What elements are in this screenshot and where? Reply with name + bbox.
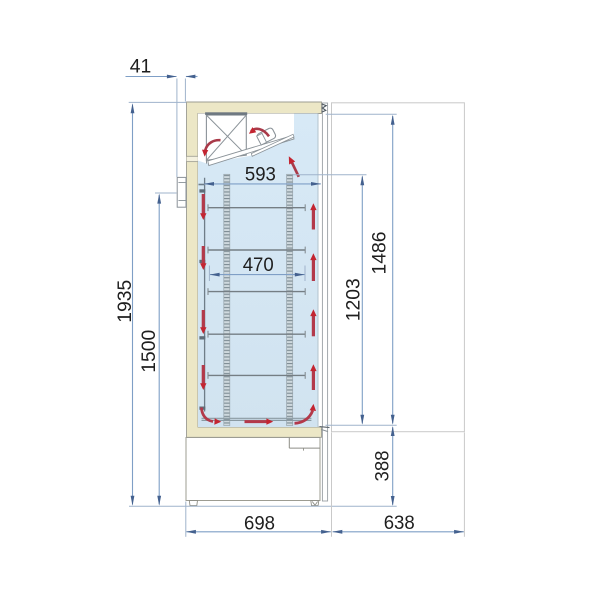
svg-text:1203: 1203 [343,278,364,321]
svg-text:388: 388 [373,451,394,482]
svg-text:470: 470 [243,255,274,276]
svg-text:638: 638 [384,513,415,534]
svg-text:1935: 1935 [115,280,136,323]
svg-text:1500: 1500 [139,330,160,373]
svg-text:1486: 1486 [369,232,390,275]
svg-text:41: 41 [130,56,152,77]
svg-text:698: 698 [244,514,275,535]
svg-text:593: 593 [245,165,276,186]
